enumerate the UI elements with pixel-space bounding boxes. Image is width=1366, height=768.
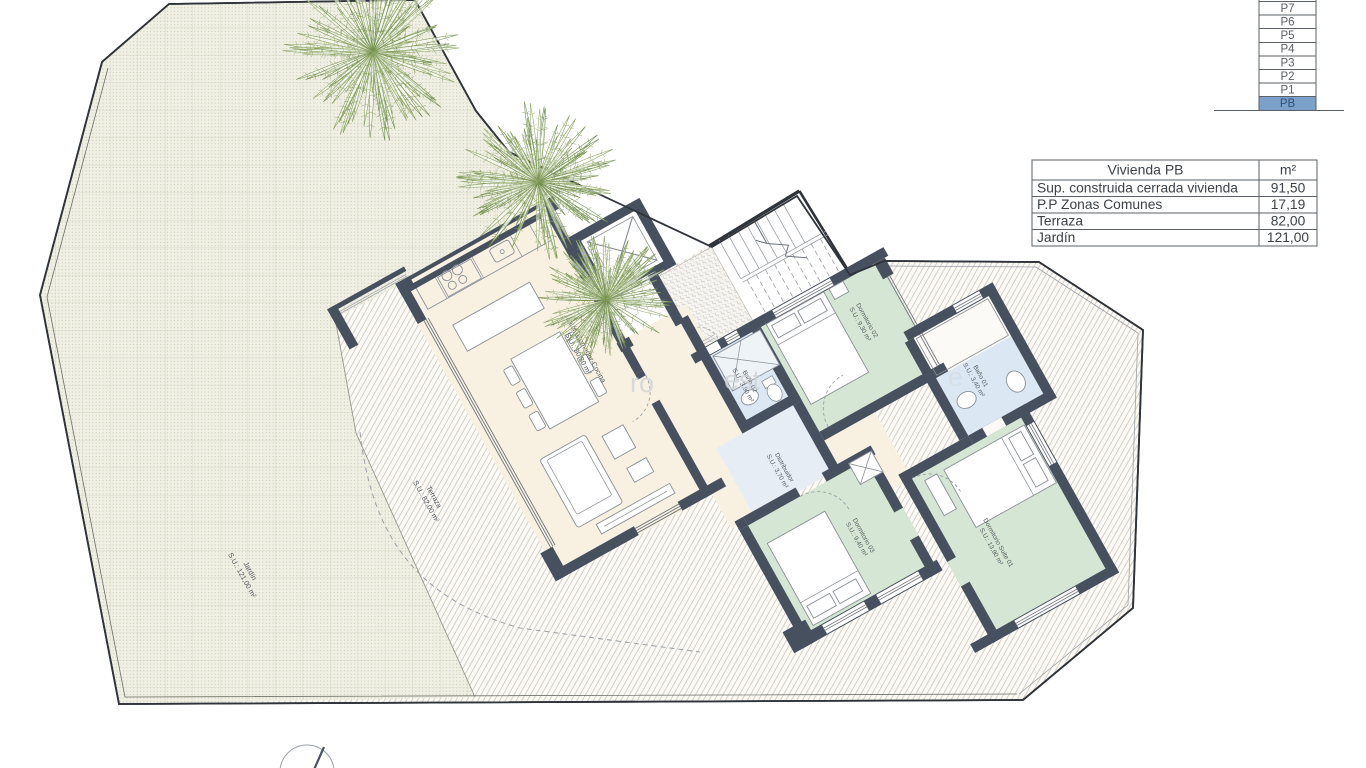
- svg-text:121,00: 121,00: [1267, 230, 1310, 245]
- svg-text:Jardín: Jardín: [1037, 230, 1075, 245]
- svg-text:est: est: [724, 365, 761, 395]
- svg-text:82,00: 82,00: [1271, 214, 1306, 229]
- svg-text:P1: P1: [1280, 85, 1294, 97]
- svg-text:17,19: 17,19: [1271, 197, 1306, 212]
- svg-text:PB: PB: [1280, 98, 1296, 110]
- svg-text:P.P Zonas Comunes: P.P Zonas Comunes: [1037, 197, 1162, 212]
- svg-text:m²: m²: [1280, 162, 1297, 178]
- svg-text:P2: P2: [1280, 71, 1294, 83]
- svg-text:91,50: 91,50: [1271, 181, 1306, 196]
- svg-text:P7: P7: [1280, 3, 1294, 15]
- svg-text:P3: P3: [1280, 57, 1294, 69]
- svg-text:Vivienda PB: Vivienda PB: [1107, 162, 1183, 178]
- svg-text:e: e: [948, 362, 963, 392]
- svg-text:P4: P4: [1280, 44, 1295, 56]
- svg-text:P5: P5: [1280, 30, 1294, 42]
- svg-text:Terraza: Terraza: [1037, 214, 1083, 229]
- svg-text:ro: ro: [630, 368, 654, 398]
- svg-text:Sup. construida cerrada vivien: Sup. construida cerrada vivienda: [1037, 181, 1238, 196]
- svg-text:P6: P6: [1280, 17, 1294, 29]
